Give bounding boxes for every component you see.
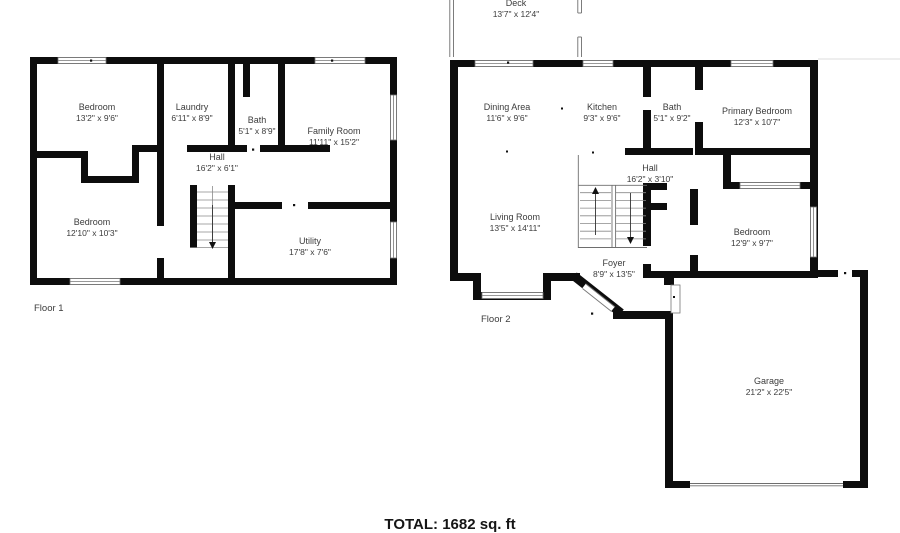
floor1-label: Floor 1 xyxy=(34,303,64,314)
room-label-bedroom-1: Bedroom 13'2" x 9'6" xyxy=(76,102,118,124)
room-label-hall-1: Hall 16'2" x 6'1" xyxy=(196,152,238,174)
room-label-primary-bedroom: Primary Bedroom 12'3" x 10'7" xyxy=(722,106,792,128)
total-area-label: TOTAL: 1682 sq. ft xyxy=(384,516,515,533)
room-label-utility: Utility 17'8" x 7'6" xyxy=(289,236,331,258)
room-label-foyer: Foyer 8'9" x 13'5" xyxy=(593,258,635,280)
room-label-bedroom-2: Bedroom 12'10" x 10'3" xyxy=(66,217,117,239)
room-label-hall-2: Hall 16'2" x 3'10" xyxy=(627,163,674,185)
room-label-deck: Deck 13'7" x 12'4" xyxy=(493,0,540,20)
room-label-laundry: Laundry 6'11" x 8'9" xyxy=(171,102,212,124)
room-label-bath-1: Bath 5'1" x 8'9" xyxy=(238,115,275,137)
floor2-label: Floor 2 xyxy=(481,314,511,325)
floor2-walls xyxy=(450,60,818,319)
room-label-bedroom-3: Bedroom 12'9" x 9'7" xyxy=(731,227,773,249)
room-label-family-room: Family Room 11'11" x 15'2" xyxy=(307,126,360,148)
floorplan-page: { "document": { "total": "TOTAL: 1682 sq… xyxy=(0,0,900,529)
room-label-garage: Garage 21'2" x 22'5" xyxy=(746,376,793,398)
room-label-living-room: Living Room 13'5" x 14'11" xyxy=(490,212,541,234)
garage-door-line xyxy=(690,484,843,486)
floorplan-canvas xyxy=(0,0,900,529)
room-label-bath-2: Bath 5'1" x 9'2" xyxy=(653,102,690,124)
bay-window-angled xyxy=(583,284,616,312)
room-label-dining-area: Dining Area 11'6" x 9'6" xyxy=(484,102,531,124)
room-label-kitchen: Kitchen 9'3" x 9'6" xyxy=(583,102,620,124)
